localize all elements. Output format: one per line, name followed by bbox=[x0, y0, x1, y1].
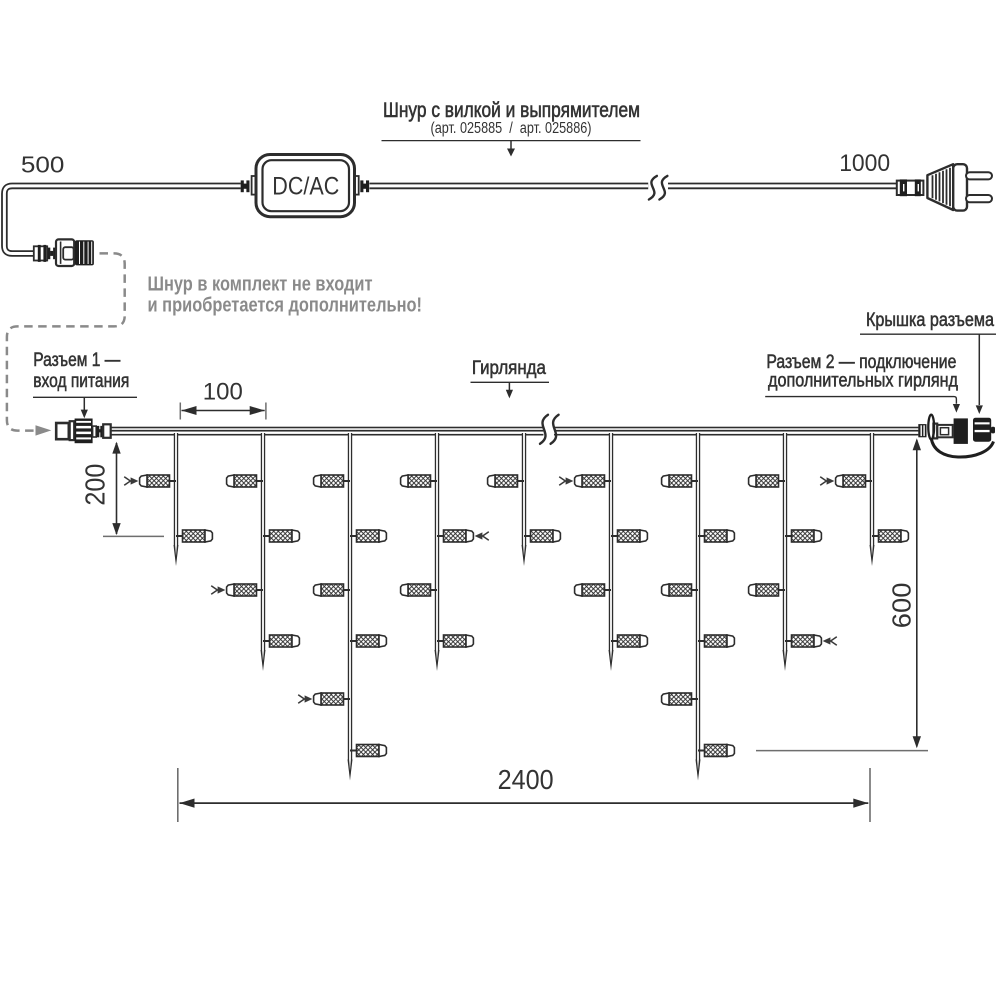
svg-text:Шнур с вилкой и выпрямителем: Шнур с вилкой и выпрямителем bbox=[383, 98, 640, 122]
svg-text:DC/AC: DC/AC bbox=[272, 173, 339, 201]
svg-text:Крышка разъема: Крышка разъема bbox=[866, 309, 994, 331]
svg-text:и приобретается дополнительно!: и приобретается дополнительно! bbox=[148, 294, 423, 317]
svg-text:Разъем 1 —: Разъем 1 — bbox=[33, 349, 120, 371]
svg-text:дополнительных гирлянд: дополнительных гирлянд bbox=[768, 369, 959, 391]
svg-text:500: 500 bbox=[21, 152, 65, 178]
svg-text:Шнур в комплект не входит: Шнур в комплект не входит bbox=[148, 273, 373, 296]
svg-text:200: 200 bbox=[80, 464, 111, 506]
svg-text:(арт. 025885 / арт. 025886): (арт. 025885 / арт. 025886) bbox=[431, 120, 592, 137]
svg-text:2400: 2400 bbox=[498, 764, 554, 795]
svg-text:100: 100 bbox=[203, 378, 243, 405]
svg-text:1000: 1000 bbox=[839, 150, 890, 177]
svg-text:600: 600 bbox=[887, 583, 917, 629]
svg-text:Гирлянда: Гирлянда bbox=[472, 357, 546, 379]
svg-text:вход питания: вход питания bbox=[33, 370, 129, 392]
